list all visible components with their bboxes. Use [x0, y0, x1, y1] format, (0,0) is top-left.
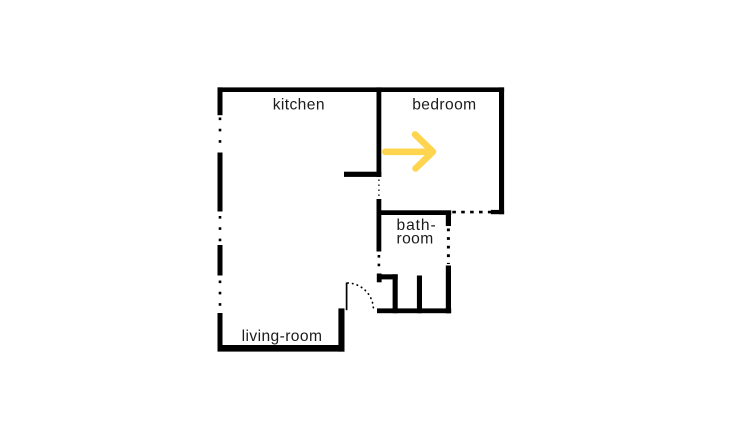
svg-text:room: room: [397, 230, 434, 247]
svg-text:living-room: living-room: [242, 328, 323, 345]
svg-text:kitchen: kitchen: [273, 97, 325, 114]
svg-text:bedroom: bedroom: [412, 97, 476, 114]
